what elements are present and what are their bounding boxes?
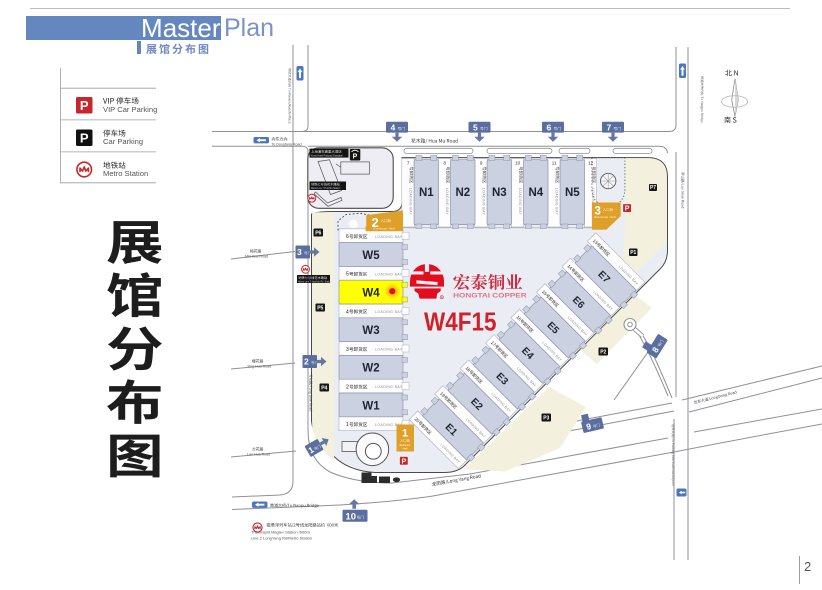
svg-text:N5: N5: [565, 187, 580, 199]
svg-text:9: 9: [480, 161, 483, 166]
svg-text:N4: N4: [528, 187, 543, 199]
svg-text:Entrance: Entrance: [400, 443, 411, 447]
svg-text:P5: P5: [317, 305, 323, 311]
svg-text:Lan Hua Road: Lan Hua Road: [247, 452, 270, 456]
svg-text:5: 5: [473, 123, 478, 133]
svg-text:P4: P4: [321, 385, 327, 391]
svg-text:Entrance Hall: Entrance Hall: [595, 215, 616, 219]
svg-text:3: 3: [346, 347, 349, 353]
svg-text:Kerry Hotel Pudong Shanghai: Kerry Hotel Pudong Shanghai: [311, 155, 343, 158]
svg-text:6: 6: [547, 123, 552, 133]
svg-text:N2: N2: [455, 187, 470, 199]
svg-text:LOADING BAY: LOADING BAY: [482, 188, 486, 215]
svg-text:P3: P3: [543, 415, 549, 421]
svg-text:N1: N1: [419, 187, 434, 199]
svg-text:3: 3: [297, 247, 302, 257]
svg-text:1: 1: [402, 428, 408, 440]
svg-text:P6: P6: [315, 230, 321, 236]
svg-text:12: 12: [588, 161, 594, 166]
svg-text:Entrance Hall: Entrance Hall: [374, 227, 395, 231]
svg-text:P: P: [353, 154, 358, 161]
svg-text:R: R: [441, 295, 443, 299]
svg-text:8: 8: [443, 161, 446, 166]
svg-text:Ying Hua Road: Ying Hua Road: [247, 364, 271, 368]
svg-text:LOADING BAY: LOADING BAY: [555, 188, 559, 215]
svg-text:11: 11: [552, 161, 557, 166]
svg-text:LOADING BAY: LOADING BAY: [518, 188, 522, 215]
svg-text:LOADING BAY: LOADING BAY: [375, 348, 403, 352]
svg-text:7: 7: [407, 161, 410, 166]
svg-text:LOADING BAY: LOADING BAY: [375, 272, 403, 276]
svg-text:P7: P7: [650, 185, 656, 191]
svg-text:Line 2 LongYang Rd/Metro Stati: Line 2 LongYang Rd/Metro Station: [251, 536, 312, 541]
svg-text:P: P: [625, 206, 630, 213]
svg-text:LOADING BAY: LOADING BAY: [375, 310, 403, 314]
svg-text:W5: W5: [362, 250, 380, 262]
svg-text:P: P: [401, 458, 406, 465]
svg-text:W2: W2: [362, 363, 379, 375]
svg-text:P1: P1: [630, 250, 636, 256]
svg-text:2: 2: [346, 385, 349, 391]
svg-text:W4: W4: [362, 288, 380, 300]
svg-text:N3: N3: [492, 187, 507, 199]
svg-text:W1: W1: [362, 400, 380, 412]
svg-text:10: 10: [515, 161, 521, 166]
svg-text:P2: P2: [600, 349, 606, 355]
svg-text:HONGTAI COPPER: HONGTAI COPPER: [453, 293, 527, 300]
svg-text:Hall: Hall: [403, 446, 408, 450]
svg-text:4: 4: [391, 123, 396, 133]
svg-text:7: 7: [607, 123, 612, 133]
svg-text:5: 5: [346, 272, 349, 278]
svg-text:W3: W3: [362, 325, 379, 337]
svg-text:Metro Line 7 Hua Mu Rd. Stati: Metro Line 7 Hua Mu Rd. Station: [298, 280, 332, 283]
svg-text:To Dongfang Road: To Dongfang Road: [272, 142, 302, 146]
svg-text:Metro Line 7 Hua Mu Station: Metro Line 7 Hua Mu Station: [311, 187, 341, 190]
svg-text:10: 10: [346, 511, 357, 522]
svg-text:4: 4: [346, 309, 349, 315]
svg-text:2: 2: [304, 357, 309, 367]
svg-text:1: 1: [346, 422, 349, 428]
svg-text:LOADING BAY: LOADING BAY: [445, 188, 449, 215]
svg-text:LOADING BAY: LOADING BAY: [375, 385, 403, 389]
svg-text:W4F15: W4F15: [424, 308, 497, 336]
svg-text:LOADING BAY: LOADING BAY: [375, 235, 403, 239]
svg-text:6: 6: [346, 234, 349, 240]
svg-text:Min Hua Road: Min Hua Road: [245, 254, 268, 258]
svg-text:Transrapid Maglev Station /60: Transrapid Maglev Station /600m: [251, 530, 310, 535]
svg-text:LOADING BAY: LOADING BAY: [409, 188, 413, 215]
